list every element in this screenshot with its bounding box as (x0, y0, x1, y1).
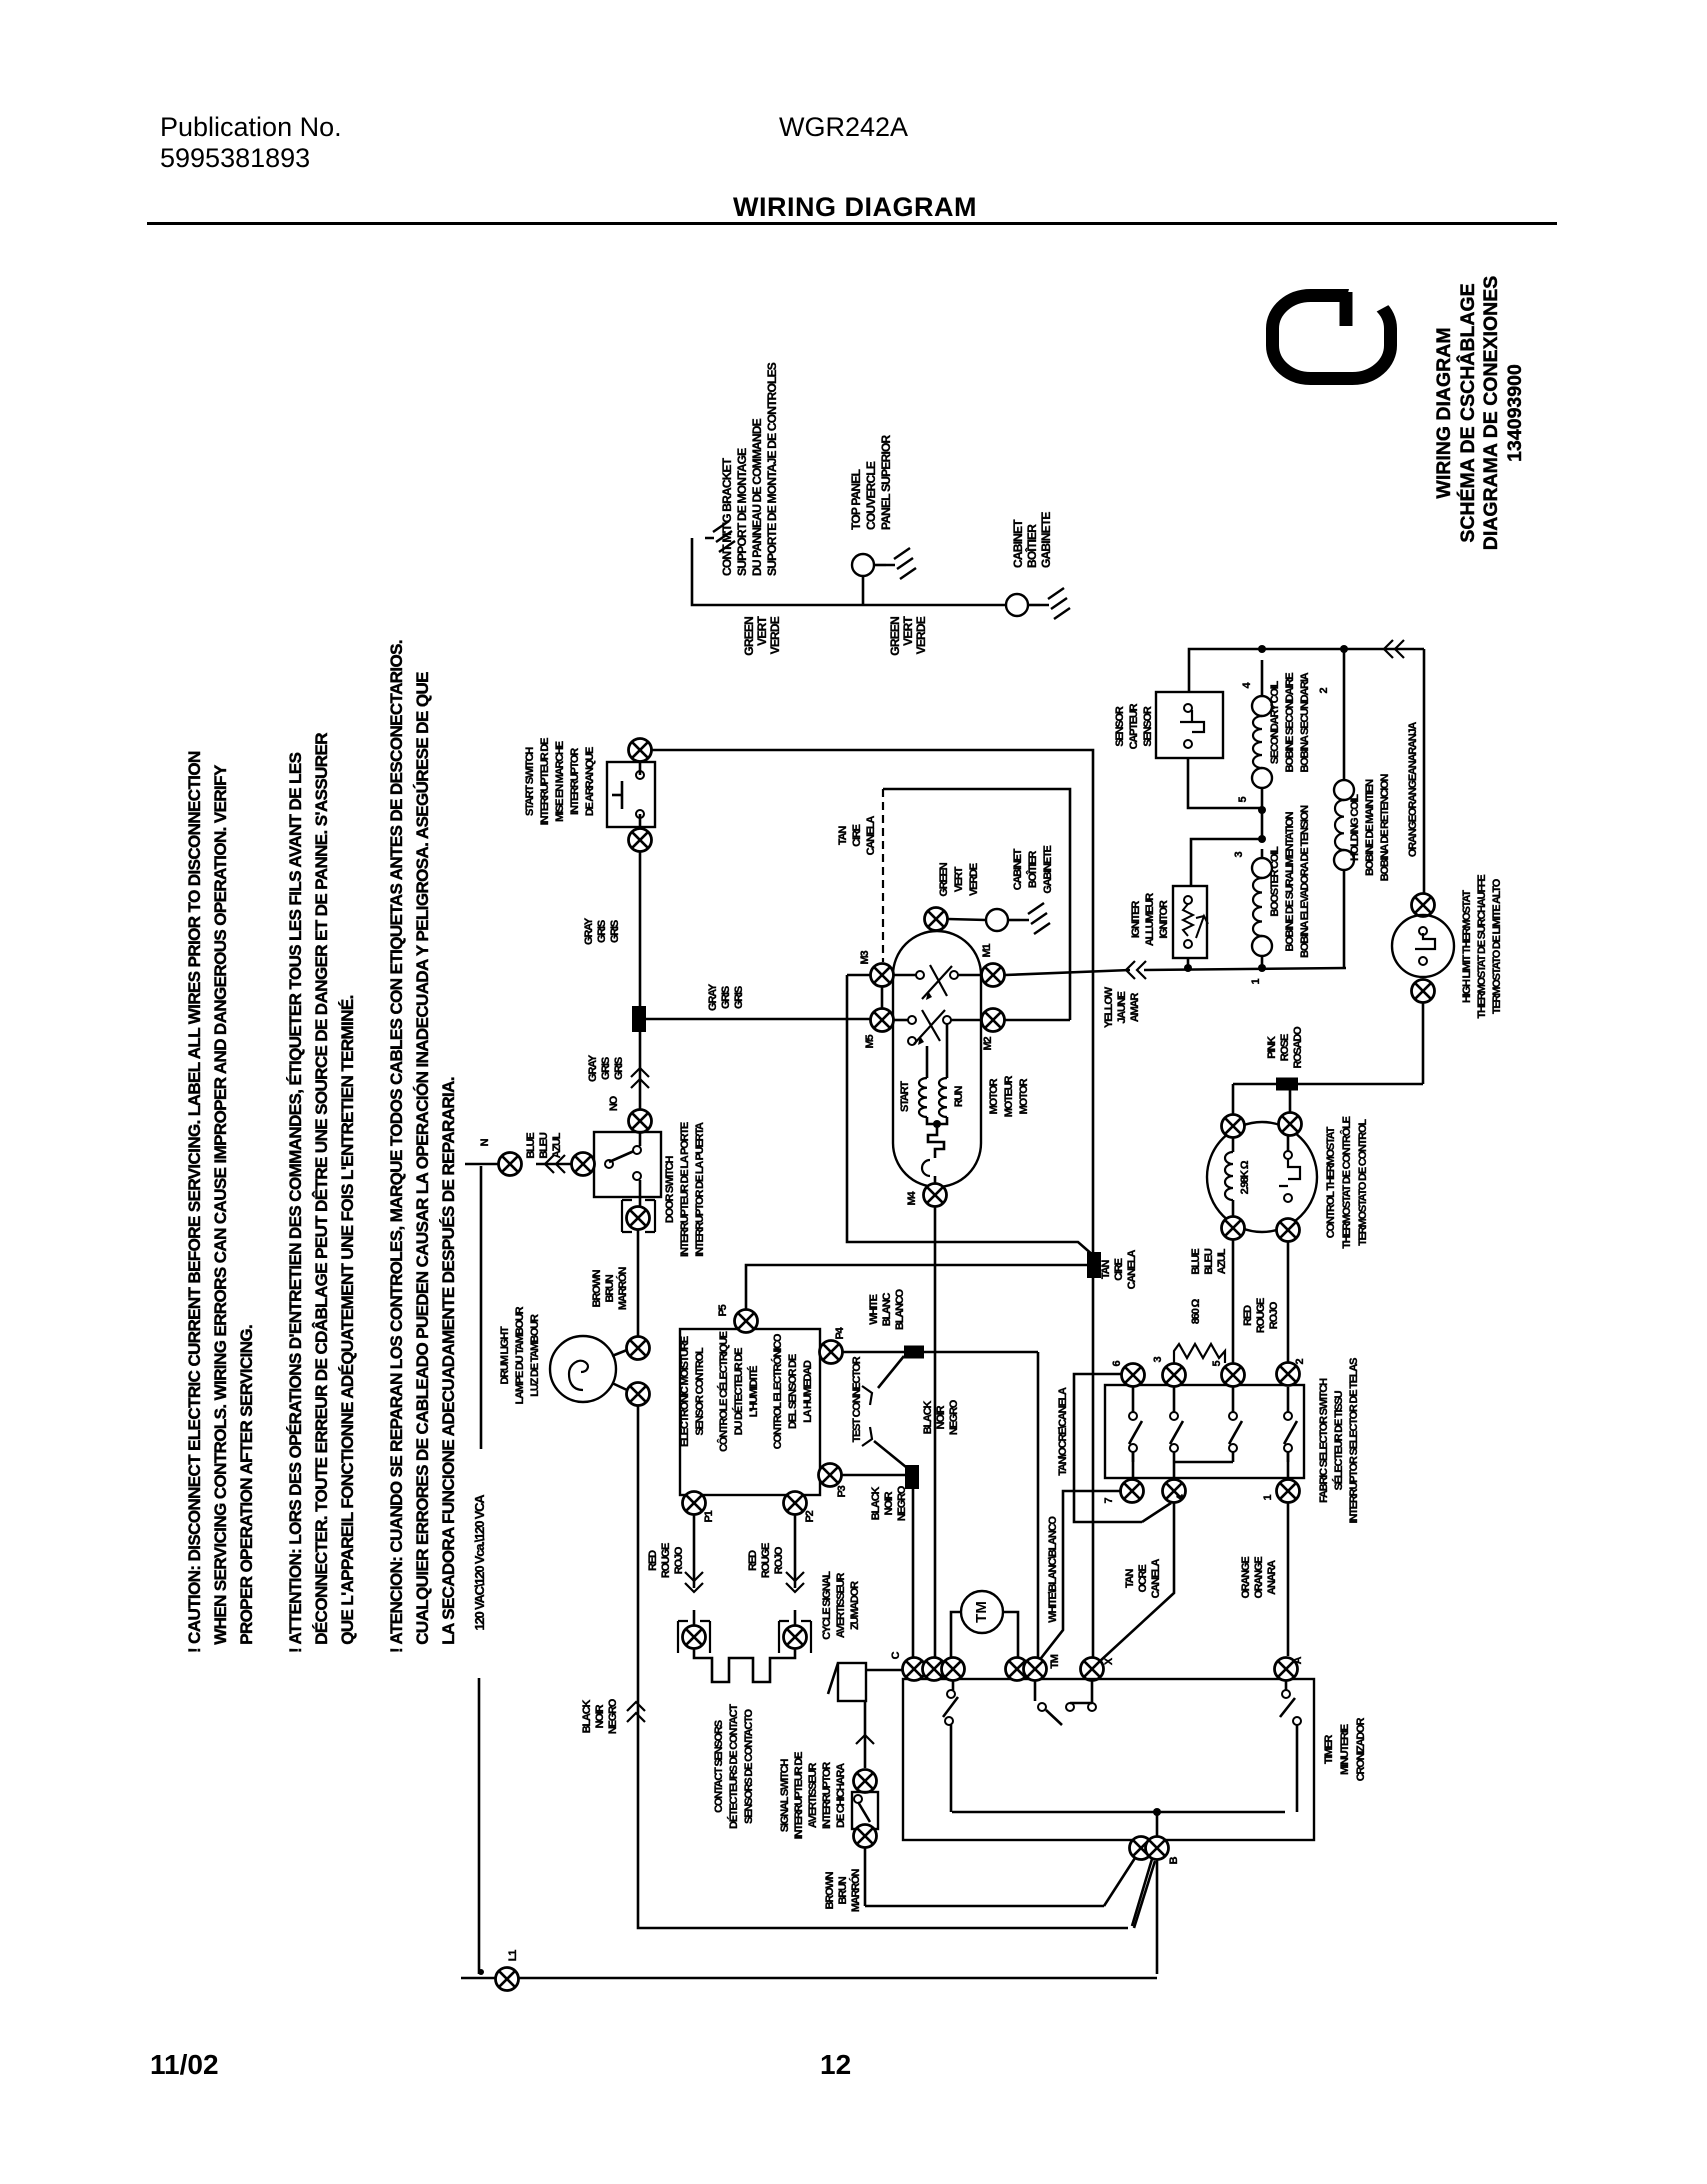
svg-text:HOLDING COIL: HOLDING COIL (1349, 794, 1361, 861)
svg-text:RUN: RUN (953, 1086, 965, 1107)
svg-text:LUZ DE TAMBOUR: LUZ DE TAMBOUR (529, 1314, 541, 1397)
svg-text:VERT: VERT (901, 616, 915, 646)
svg-text:RED: RED (647, 1550, 659, 1571)
svg-text:ROSE: ROSE (1279, 1034, 1291, 1061)
svg-text:GRAY: GRAY (707, 983, 719, 1011)
svg-text:IGNITOR: IGNITOR (1158, 900, 1170, 938)
svg-text:DU PANNEAU DE COMMANDE: DU PANNEAU DE COMMANDE (750, 418, 764, 576)
svg-text:BLANCO: BLANCO (894, 1288, 906, 1329)
svg-text:L1: L1 (507, 1950, 519, 1962)
svg-text:SÉLECTEUR DE TISSU: SÉLECTEUR DE TISSU (1332, 1390, 1345, 1490)
svg-text:BROWN: BROWN (591, 1269, 603, 1307)
svg-text:OCRE: OCRE (1137, 1565, 1149, 1593)
svg-text:5: 5 (1237, 796, 1249, 802)
svg-text:GREEN: GREEN (888, 617, 902, 656)
svg-text:CIRE: CIRE (1113, 1258, 1125, 1280)
svg-text:INTERRUPTOR DE LA PUERTA: INTERRUPTOR DE LA PUERTA (694, 1122, 706, 1257)
svg-text:CANELA: CANELA (1126, 1249, 1138, 1289)
svg-text:ALLUMEUR: ALLUMEUR (1144, 893, 1156, 946)
svg-text:M3: M3 (859, 950, 871, 964)
svg-text:ROUGE: ROUGE (660, 1543, 672, 1578)
svg-text:M5: M5 (864, 1034, 876, 1048)
svg-text:NO: NO (608, 1095, 620, 1111)
svg-text:BOBINA DE RETENCION: BOBINA DE RETENCION (1379, 774, 1391, 882)
svg-text:AZUL: AZUL (551, 1132, 563, 1158)
svg-text:NEGRO: NEGRO (607, 1698, 619, 1734)
svg-text:ORANGE: ORANGE (1253, 1557, 1265, 1599)
svg-text:MARRÓN: MARRÓN (849, 1869, 862, 1913)
svg-text:CABINET: CABINET (1012, 848, 1024, 890)
svg-text:TAN: TAN (1124, 1569, 1136, 1588)
svg-text:ORANGEORANGEANARANJA: ORANGEORANGEANARANJA (1407, 722, 1419, 858)
svg-text:AZUL: AZUL (1216, 1248, 1228, 1274)
svg-text:BLACK: BLACK (870, 1486, 882, 1520)
svg-text:P1: P1 (703, 1510, 715, 1522)
svg-text:P2: P2 (804, 1510, 816, 1522)
svg-text:TIMER: TIMER (1323, 1735, 1335, 1764)
svg-text:AVERTISSEUR: AVERTISSEUR (835, 1573, 847, 1638)
svg-text:SECONDARY COIL: SECONDARY COIL (1269, 680, 1281, 764)
svg-text:1: 1 (1250, 978, 1262, 984)
svg-text:AMAR: AMAR (1129, 993, 1141, 1022)
svg-text:3: 3 (1233, 851, 1245, 857)
svg-text:GRIS: GRIS (600, 1057, 612, 1080)
svg-text:ROSADO: ROSADO (1292, 1026, 1304, 1069)
svg-text:GABINETE: GABINETE (1042, 846, 1054, 894)
svg-text:VERDE: VERDE (768, 616, 782, 654)
svg-text:N: N (479, 1138, 491, 1146)
svg-text:BLACK: BLACK (581, 1699, 593, 1733)
svg-text:P3: P3 (836, 1485, 848, 1497)
svg-text:SIGNAL SWITCH: SIGNAL SWITCH (779, 1759, 791, 1832)
svg-text:MINUTERIE: MINUTERIE (1339, 1724, 1351, 1775)
svg-text:SENSOR CONTROL: SENSOR CONTROL (694, 1347, 706, 1436)
svg-text:1: 1 (1262, 1494, 1274, 1500)
svg-text:2: 2 (1318, 687, 1330, 693)
svg-text:M4: M4 (906, 1190, 918, 1205)
svg-text:BRUN: BRUN (604, 1274, 616, 1302)
svg-text:PANEL SUPERIOR: PANEL SUPERIOR (879, 434, 893, 530)
svg-text:ZUMADOR: ZUMADOR (849, 1581, 861, 1630)
svg-text:TM: TM (1049, 1654, 1061, 1669)
svg-text:CONTACT SENSORS: CONTACT SENSORS (713, 1720, 725, 1813)
svg-text:ROJO: ROJO (1268, 1301, 1280, 1329)
svg-text:L'HUMIDITÉ: L'HUMIDITÉ (747, 1366, 760, 1417)
svg-text:ANARA: ANARA (1266, 1560, 1278, 1595)
svg-text:SUPPORT DE MONTAGE: SUPPORT DE MONTAGE (735, 448, 749, 576)
svg-text:BLEU: BLEU (1203, 1248, 1215, 1274)
svg-text:TAN\OCRE\CANELA: TAN\OCRE\CANELA (1057, 1387, 1069, 1476)
svg-text:BOOSTER COIL: BOOSTER COIL (1269, 846, 1281, 917)
svg-text:CANELA: CANELA (1150, 1558, 1162, 1598)
svg-text:GREEN: GREEN (742, 617, 756, 656)
svg-text:BRUN: BRUN (837, 1876, 849, 1904)
svg-text:ROJO: ROJO (773, 1546, 785, 1574)
svg-text:MOTEUR: MOTEUR (1003, 1076, 1015, 1118)
svg-text:DE ARRANQUE: DE ARRANQUE (584, 747, 596, 816)
svg-text:LA HUMEDAD: LA HUMEDAD (802, 1360, 814, 1423)
svg-text:2: 2 (1294, 1358, 1306, 1364)
svg-text:RED: RED (747, 1550, 759, 1571)
svg-text:ROUGE: ROUGE (760, 1543, 772, 1578)
svg-text:M1: M1 (981, 943, 993, 957)
svg-text:M2: M2 (982, 1036, 994, 1050)
svg-text:SENSOR: SENSOR (1142, 706, 1154, 747)
svg-text:PINK: PINK (1266, 1036, 1278, 1059)
svg-text:BROWN: BROWN (824, 1871, 836, 1909)
svg-text:TERMOSTATO DE CONTROL: TERMOSTATO DE CONTROL (1357, 1119, 1369, 1246)
svg-text:BOÎTIER: BOÎTIER (1024, 524, 1039, 568)
svg-text:CAPTEUR: CAPTEUR (1128, 703, 1140, 749)
svg-text:GREEN: GREEN (938, 862, 950, 896)
svg-text:DE CHICHARA: DE CHICHARA (835, 1763, 847, 1828)
svg-text:6: 6 (1111, 1360, 1123, 1366)
svg-text:120 VAC\120 Vca.\120 VCA: 120 VAC\120 Vca.\120 VCA (472, 1494, 487, 1631)
svg-text:BOBINA ELEVADORA DE TENSION: BOBINA ELEVADORA DE TENSION (1299, 805, 1311, 958)
svg-text:TOP PANEL: TOP PANEL (849, 469, 863, 530)
svg-text:GRIS: GRIS (613, 1057, 625, 1080)
svg-text:TAN: TAN (1100, 1260, 1112, 1279)
svg-text:MOTOR: MOTOR (988, 1078, 1000, 1114)
svg-text:GRAY: GRAY (583, 917, 595, 945)
svg-text:LAMPE DU TAMBOUR: LAMPE DU TAMBOUR (514, 1306, 526, 1404)
svg-text:BLANC: BLANC (881, 1292, 893, 1326)
svg-text:THERMOSTAT DE SURCHAUFFE: THERMOSTAT DE SURCHAUFFE (1476, 875, 1488, 1019)
svg-text:NEGRO: NEGRO (896, 1485, 908, 1521)
svg-text:START: START (899, 1081, 911, 1112)
svg-text:DRUM LIGHT: DRUM LIGHT (499, 1326, 511, 1385)
svg-text:NOIR: NOIR (883, 1491, 895, 1515)
svg-text:MISE EN MARCHE: MISE EN MARCHE (554, 741, 566, 822)
svg-text:ROJO: ROJO (673, 1546, 685, 1574)
svg-text:INTERRUPTOR SELECTOR DE TELAS: INTERRUPTOR SELECTOR DE TELAS (1348, 1358, 1360, 1524)
svg-text:VERT: VERT (953, 866, 965, 892)
svg-text:YELLOW: YELLOW (1103, 986, 1115, 1028)
svg-text:BLEU: BLEU (538, 1132, 550, 1158)
svg-text:A: A (1292, 1656, 1304, 1664)
svg-text:CONTROL ELECTRÓNICO: CONTROL ELECTRÓNICO (771, 1333, 784, 1449)
svg-text:START SWITCH: START SWITCH (524, 747, 536, 816)
svg-text:B: B (1168, 1856, 1180, 1864)
svg-text:THERMOSTAT DE CONTRÔLE: THERMOSTAT DE CONTRÔLE (1340, 1116, 1353, 1248)
svg-text:MARRÓN: MARRÓN (616, 1267, 629, 1311)
svg-text:NOIR: NOIR (594, 1704, 606, 1728)
svg-text:TEST CONNECTOR: TEST CONNECTOR (851, 1356, 863, 1442)
svg-text:BOBINE DE MAINTIEN: BOBINE DE MAINTIEN (1364, 779, 1376, 876)
svg-text:WHITE\BLANC\BLANCO: WHITE\BLANC\BLANCO (1047, 1516, 1059, 1623)
svg-text:CÔNTROLE CÉLECTRIQUE: CÔNTROLE CÉLECTRIQUE (717, 1331, 730, 1451)
svg-text:CIRE: CIRE (851, 824, 863, 846)
svg-text:3: 3 (1152, 1356, 1164, 1362)
svg-text:860 Ω: 860 Ω (1190, 1299, 1202, 1325)
svg-text:ORANGE: ORANGE (1240, 1557, 1252, 1599)
svg-text:JAUNE: JAUNE (1116, 991, 1128, 1023)
svg-text:INTERRUPTEUR DE LA PORTE: INTERRUPTEUR DE LA PORTE (679, 1122, 691, 1257)
svg-text:GRAY: GRAY (587, 1054, 599, 1082)
svg-text:ELECTRONIC MOISTURE: ELECTRONIC MOISTURE (679, 1336, 691, 1447)
svg-text:FABRIC SELECTOR SWITCH: FABRIC SELECTOR SWITCH (1318, 1378, 1330, 1503)
svg-text:7: 7 (1103, 1497, 1115, 1503)
svg-text:SUPORTE DE MONTAJE DE CONTROLE: SUPORTE DE MONTAJE DE CONTROLES (765, 362, 779, 576)
svg-text:TAN: TAN (837, 826, 849, 845)
svg-text:5: 5 (1211, 1360, 1223, 1366)
svg-text:BLACK: BLACK (922, 1400, 934, 1434)
svg-text:DU DÉTECTEUR DE: DU DÉTECTEUR DE (732, 1348, 745, 1435)
svg-text:BLUE: BLUE (525, 1133, 537, 1159)
svg-text:GRIS: GRIS (609, 920, 621, 943)
svg-text:VERDE: VERDE (914, 616, 928, 654)
svg-text:HIGH LIMIT THERMOSTAT: HIGH LIMIT THERMOSTAT (1461, 890, 1473, 1003)
svg-text:RED: RED (1242, 1305, 1254, 1326)
svg-text:DÉTECTEURS DE CONTACT: DÉTECTEURS DE CONTACT (727, 1704, 740, 1829)
svg-text:GABINETE: GABINETE (1039, 512, 1053, 568)
svg-text:AVERTISSEUR: AVERTISSEUR (807, 1763, 819, 1828)
svg-text:BOBINA SECUNDARIA: BOBINA SECUNDARIA (1299, 672, 1311, 772)
svg-text:NEGRO: NEGRO (948, 1399, 960, 1435)
svg-text:COUVERCLE: COUVERCLE (864, 461, 878, 530)
svg-text:VERT: VERT (755, 616, 769, 646)
svg-text:TM: TM (973, 1601, 990, 1623)
svg-text:2.98K Ω: 2.98K Ω (1239, 1160, 1251, 1194)
svg-text:DOOR SWITCH: DOOR SWITCH (664, 1156, 676, 1223)
svg-text:CONTROL THERMOSTAT: CONTROL THERMOSTAT (1325, 1126, 1337, 1238)
svg-text:BLUE: BLUE (1190, 1249, 1202, 1275)
svg-text:SENSOR: SENSOR (1114, 706, 1126, 747)
svg-text:C: C (890, 1651, 902, 1659)
svg-text:GRIS: GRIS (733, 986, 745, 1009)
svg-text:CABINET: CABINET (1011, 519, 1025, 568)
svg-text:BOBINE SECONDAIRE: BOBINE SECONDAIRE (1284, 673, 1296, 773)
svg-text:CRONIZADOR: CRONIZADOR (1355, 1717, 1367, 1781)
svg-text:ROUGE: ROUGE (1255, 1298, 1267, 1333)
svg-text:VERDE: VERDE (968, 863, 980, 896)
svg-text:NOIR: NOIR (935, 1405, 947, 1429)
svg-text:GRIS: GRIS (720, 986, 732, 1009)
svg-text:4: 4 (1241, 681, 1253, 688)
svg-text:DEL SENSOR DE: DEL SENSOR DE (787, 1354, 799, 1429)
svg-text:INTERRUPTEUR DE: INTERRUPTEUR DE (793, 1752, 805, 1839)
svg-text:WHITE: WHITE (868, 1294, 880, 1324)
svg-text:CANELA: CANELA (865, 815, 877, 855)
svg-text:BOÎTIER: BOÎTIER (1026, 851, 1039, 888)
svg-text:INTERRUPTOR: INTERRUPTOR (821, 1762, 833, 1829)
svg-text:BOBINE DE SURALIMENTATION: BOBINE DE SURALIMENTATION (1284, 811, 1296, 951)
svg-text:MOTOR: MOTOR (1018, 1078, 1030, 1114)
svg-text:INTERRUPTOR: INTERRUPTOR (569, 748, 581, 815)
svg-text:GRIS: GRIS (596, 920, 608, 943)
svg-text:INTERRUPTEUR DE: INTERRUPTEUR DE (539, 738, 551, 825)
svg-text:IGNITER: IGNITER (1130, 901, 1142, 938)
svg-text:P4: P4 (834, 1326, 846, 1339)
svg-text:CYCLE SIGNAL: CYCLE SIGNAL (821, 1571, 833, 1640)
svg-text:TERMOSTATO DE LIMITE ALTO: TERMOSTATO DE LIMITE ALTO (1491, 878, 1503, 1014)
svg-text:SENSORS DE CONTACTO: SENSORS DE CONTACTO (743, 1709, 755, 1824)
svg-text:P5: P5 (717, 1304, 729, 1316)
svg-text:CONT M'T'G BRACKET: CONT M'T'G BRACKET (720, 457, 734, 576)
